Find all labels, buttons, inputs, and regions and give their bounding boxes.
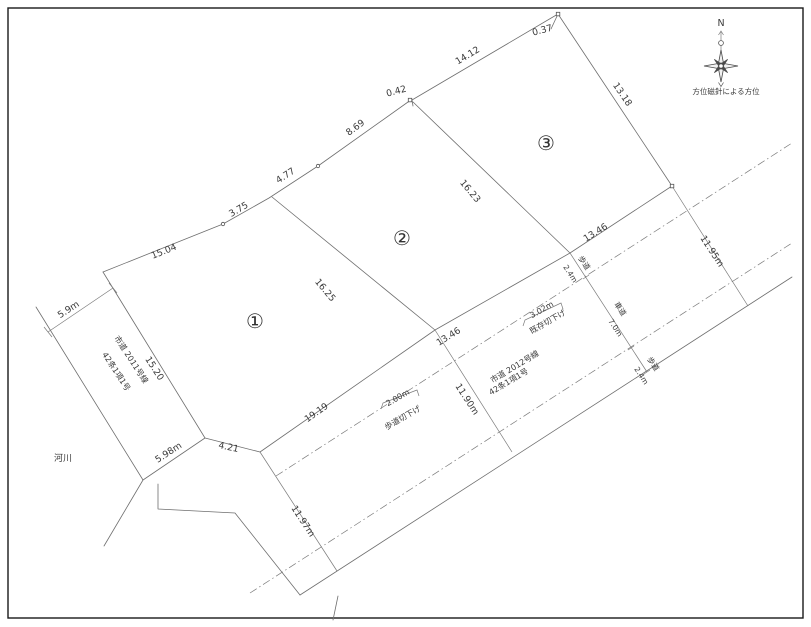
survey-drawing-canvas: 15.04 3.75 4.77 8.69 0.42 14.12 0.37 13.…	[0, 0, 811, 627]
dim-13-46-a: 13.46	[435, 325, 463, 348]
dim-roadway: 7.0m	[606, 317, 624, 338]
dim-curb-cut-new: 2.00m	[384, 387, 411, 408]
compass-caption: 方位磁針による方位	[692, 86, 760, 96]
compass-needle	[719, 31, 724, 50]
divider-plot2-plot3	[413, 102, 570, 253]
dim-14-12: 14.12	[454, 44, 482, 67]
survey-point	[408, 98, 412, 102]
dim-13-18: 13.18	[610, 81, 634, 109]
dim-4-77: 4.77	[274, 166, 297, 186]
plot3-number: ③	[537, 131, 555, 155]
river-label: 河川	[54, 452, 72, 464]
compass-rose-icon	[704, 50, 738, 87]
dim-19-19: 19.19	[303, 401, 331, 425]
dim-15-04: 15.04	[150, 242, 179, 262]
dimension-end-tick	[109, 283, 117, 293]
dim-16-25: 16.25	[312, 277, 337, 304]
plot1-number: ①	[246, 309, 264, 333]
survey-point-markers	[221, 12, 674, 225]
border-crossing-line	[333, 596, 338, 620]
river-boundary-lines	[158, 484, 338, 620]
dim-11-90m: 11.90m	[452, 382, 480, 418]
dim-sidewalk-bottom: 2.4m	[632, 365, 650, 386]
dim-13-46-b: 13.46	[582, 221, 610, 244]
dim-0-42: 0.42	[385, 84, 408, 100]
survey-point	[221, 222, 224, 225]
dim-3-75: 3.75	[227, 200, 250, 220]
dim-11-97m: 11.97m	[288, 504, 316, 540]
survey-point	[670, 184, 674, 188]
sidewalk-label-top: 歩道	[576, 254, 593, 272]
dim-4-21: 4.21	[217, 440, 239, 455]
dim-8-69: 8.69	[344, 117, 367, 138]
plot-number-labels: ① ② ③	[246, 131, 555, 333]
bottom-left-step-line	[158, 484, 300, 595]
dim-0-37: 0.37	[531, 23, 554, 39]
right-edge-line	[558, 14, 672, 186]
survey-point	[556, 12, 560, 16]
dim-16-23: 16.23	[457, 178, 482, 205]
cross-tick	[583, 275, 589, 279]
road2011-labels: 5.9m 15.20 5.98m 4.21 市道 2011号線 42条1項1号	[56, 299, 240, 466]
compass: N 方位磁針による方位	[692, 18, 760, 96]
survey-point	[316, 164, 319, 167]
dim-sidewalk-top: 2.4m	[561, 263, 579, 284]
plot1-left-edge	[103, 272, 205, 438]
compass-north-label: N	[717, 18, 724, 29]
roadway-label: 車道	[612, 300, 629, 318]
sidewalk-breakdown-cross	[570, 253, 647, 372]
dimension-end-tick	[44, 327, 52, 337]
plot2-number: ②	[393, 226, 411, 250]
road2011-left-edge	[36, 307, 143, 546]
dim-5-98m: 5.98m	[153, 440, 184, 465]
divider-plot1-plot2	[272, 197, 435, 330]
road2011-lines	[36, 283, 143, 546]
survey-drawing: 15.04 3.75 4.77 8.69 0.42 14.12 0.37 13.…	[0, 0, 811, 627]
dim-11-95m: 11.95m	[697, 234, 725, 270]
